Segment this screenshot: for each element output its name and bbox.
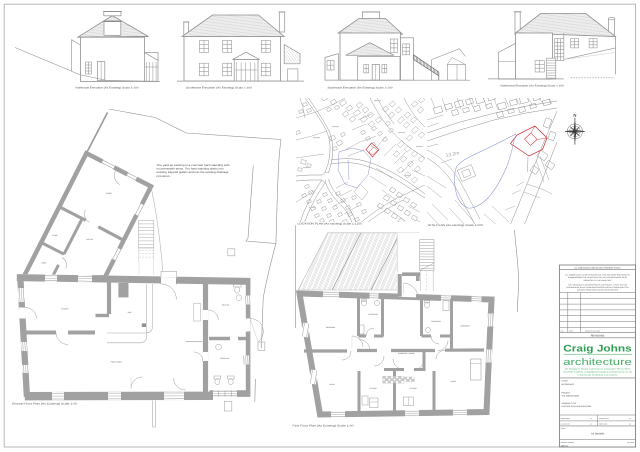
svg-text:provision.: provision. — [157, 175, 171, 178]
svg-text:DRAWING TITLE: DRAWING TITLE — [562, 402, 577, 405]
svg-text:existing trapped gullies and i: existing trapped gullies and into the ex… — [157, 171, 230, 174]
svg-text:Chartered Building Surveyors: Chartered Building Surveyors — [578, 374, 618, 377]
svg-text:STORE: STORE — [106, 192, 113, 195]
svg-text:BEDROOM: BEDROOM — [461, 325, 470, 328]
svg-text:PAPER SIZE: PAPER SIZE — [599, 423, 607, 425]
svg-text:Southeast Elevation (As Existi: Southeast Elevation (As Existing) Scale … — [328, 86, 394, 89]
svg-text:CELLAR: CELLAR — [86, 238, 93, 241]
svg-text:(01209) 610941 craig@greenspa: (01209) 610941 craig@greenspace-architec… — [563, 371, 632, 374]
svg-text:APPROVED BY: APPROVED BY — [599, 418, 609, 420]
svg-text:Southwest Elevation (As Existi: Southwest Elevation (As Existing) Scale … — [186, 86, 253, 89]
svg-text:SCALE: SCALE — [561, 428, 566, 430]
svg-text:Northwest Elevation (As Existi: Northwest Elevation (As Existing) Scale … — [501, 85, 565, 88]
svg-text:KITCHEN: KITCHEN — [61, 307, 69, 310]
svg-text:AS SHOWN: AS SHOWN — [591, 432, 604, 435]
svg-text:LIVING: LIVING — [450, 380, 456, 383]
svg-text:DATE: DATE — [569, 330, 573, 332]
svg-text:PROJECT: PROJECT — [562, 391, 572, 394]
svg-text:First Floor Plan (As Existing): First Floor Plan (As Existing) Scale 1:5… — [293, 425, 355, 428]
svg-text:BEDROOM: BEDROOM — [326, 326, 335, 329]
svg-text:0007/01: 0007/01 — [561, 445, 569, 448]
svg-text:Northeast Elevation (As Existi: Northeast Elevation (As Existing) Scale … — [76, 86, 140, 89]
svg-text:EXISTING PLAN AND ELEVATION: EXISTING PLAN AND ELEVATION — [562, 405, 592, 408]
svg-text:DRAWING NUMBER: DRAWING NUMBER — [561, 442, 574, 444]
svg-text:The yard as existing is a conc: The yard as existing is a concrete hard … — [157, 164, 231, 167]
svg-text:ALL DIMENSIONS IN MM UNLESS OT: ALL DIMENSIONS IN MM UNLESS OTHERWISE ST… — [575, 266, 622, 269]
svg-text:SITE PLAN (As existing) Scale: SITE PLAN (As existing) Scale 1:500 — [428, 224, 484, 227]
svg-text:LIVING: LIVING — [329, 383, 335, 386]
svg-text:MR GREAVES: MR GREAVES — [562, 383, 575, 386]
svg-text:Craig Johns: Craig Johns — [563, 344, 632, 355]
svg-text:architecture: architecture — [563, 357, 632, 368]
svg-text:REV: REV — [561, 330, 564, 332]
svg-text:49 Roskear Road Camborne: 49 Roskear Road Camborne Cornwall TR14 8… — [565, 368, 632, 371]
svg-text:THE AMBASSADOR: THE AMBASSADOR — [562, 395, 580, 398]
svg-text:REVISIONS: REVISIONS — [591, 335, 605, 338]
svg-text:REVISION: REVISION — [627, 442, 634, 444]
svg-text:CLIENT: CLIENT — [562, 380, 570, 383]
svg-text:no permeable areas. The hard s: no permeable areas. The hard standing dr… — [157, 168, 225, 171]
svg-text:Ground Floor Plan (As Existing: Ground Floor Plan (As Existing) Scale 1:… — [12, 402, 78, 405]
svg-text:PUBLIC AREA: PUBLIC AREA — [111, 361, 123, 364]
svg-text:NATURE OF REVISION: NATURE OF REVISION — [585, 330, 600, 332]
svg-text:CHECKED BY: CHECKED BY — [561, 423, 570, 425]
svg-text:A1: A1 — [629, 423, 631, 425]
svg-text:LOCATION PLAN (As existing) Sc: LOCATION PLAN (As existing) Scale 1:1250 — [298, 223, 363, 226]
svg-text:ORIGINATOR: ORIGINATOR — [561, 418, 570, 420]
